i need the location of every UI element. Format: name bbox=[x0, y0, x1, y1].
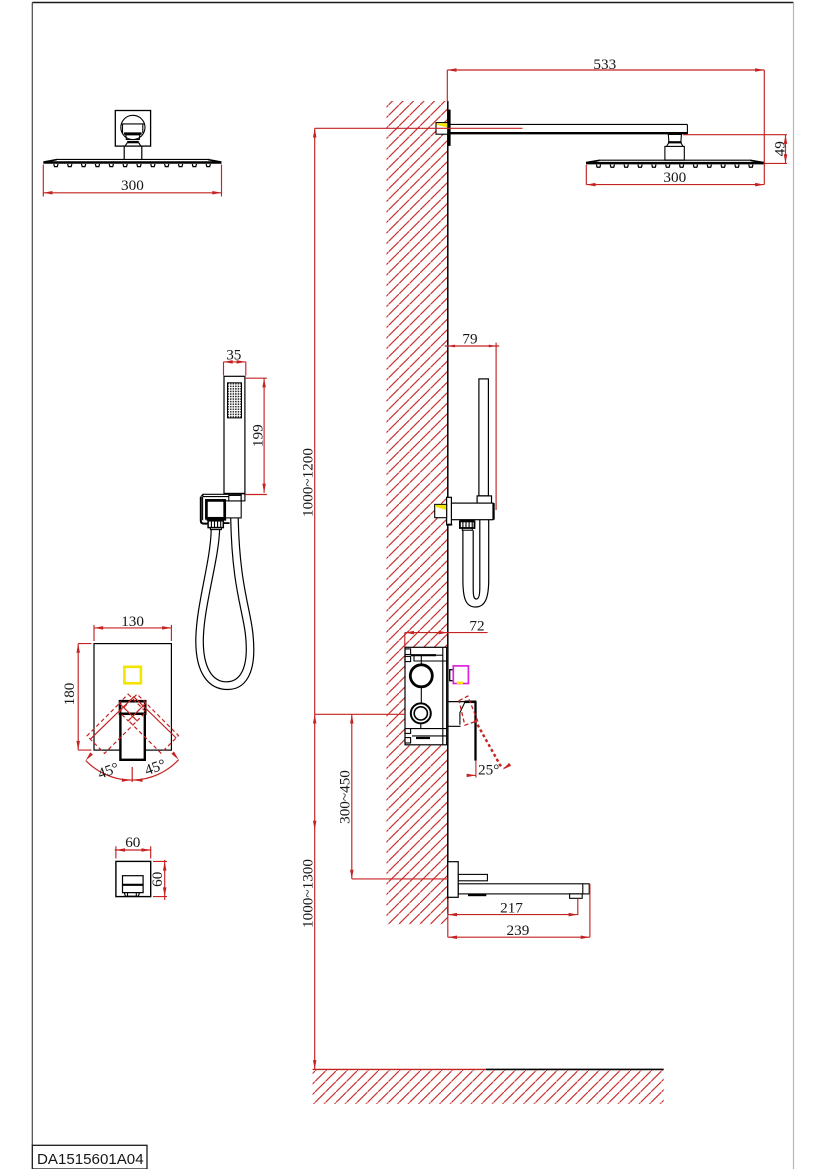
svg-text:180: 180 bbox=[61, 682, 78, 705]
svg-text:1000~1200: 1000~1200 bbox=[300, 448, 317, 517]
svg-text:239: 239 bbox=[507, 922, 530, 939]
svg-text:1000~1300: 1000~1300 bbox=[300, 859, 317, 928]
svg-text:217: 217 bbox=[500, 900, 523, 917]
svg-text:300: 300 bbox=[663, 169, 686, 186]
svg-text:25°: 25° bbox=[478, 762, 499, 779]
svg-text:DA1515601A04: DA1515601A04 bbox=[37, 1151, 144, 1168]
svg-text:60: 60 bbox=[125, 834, 141, 851]
svg-text:533: 533 bbox=[593, 56, 616, 73]
svg-text:199: 199 bbox=[250, 424, 267, 447]
svg-text:72: 72 bbox=[469, 618, 484, 635]
svg-text:130: 130 bbox=[121, 613, 144, 630]
svg-text:300: 300 bbox=[121, 177, 144, 194]
svg-text:49: 49 bbox=[771, 141, 788, 156]
svg-text:35: 35 bbox=[226, 347, 241, 364]
svg-text:79: 79 bbox=[462, 331, 477, 348]
svg-text:300~450: 300~450 bbox=[337, 770, 354, 824]
svg-text:60: 60 bbox=[149, 871, 166, 887]
